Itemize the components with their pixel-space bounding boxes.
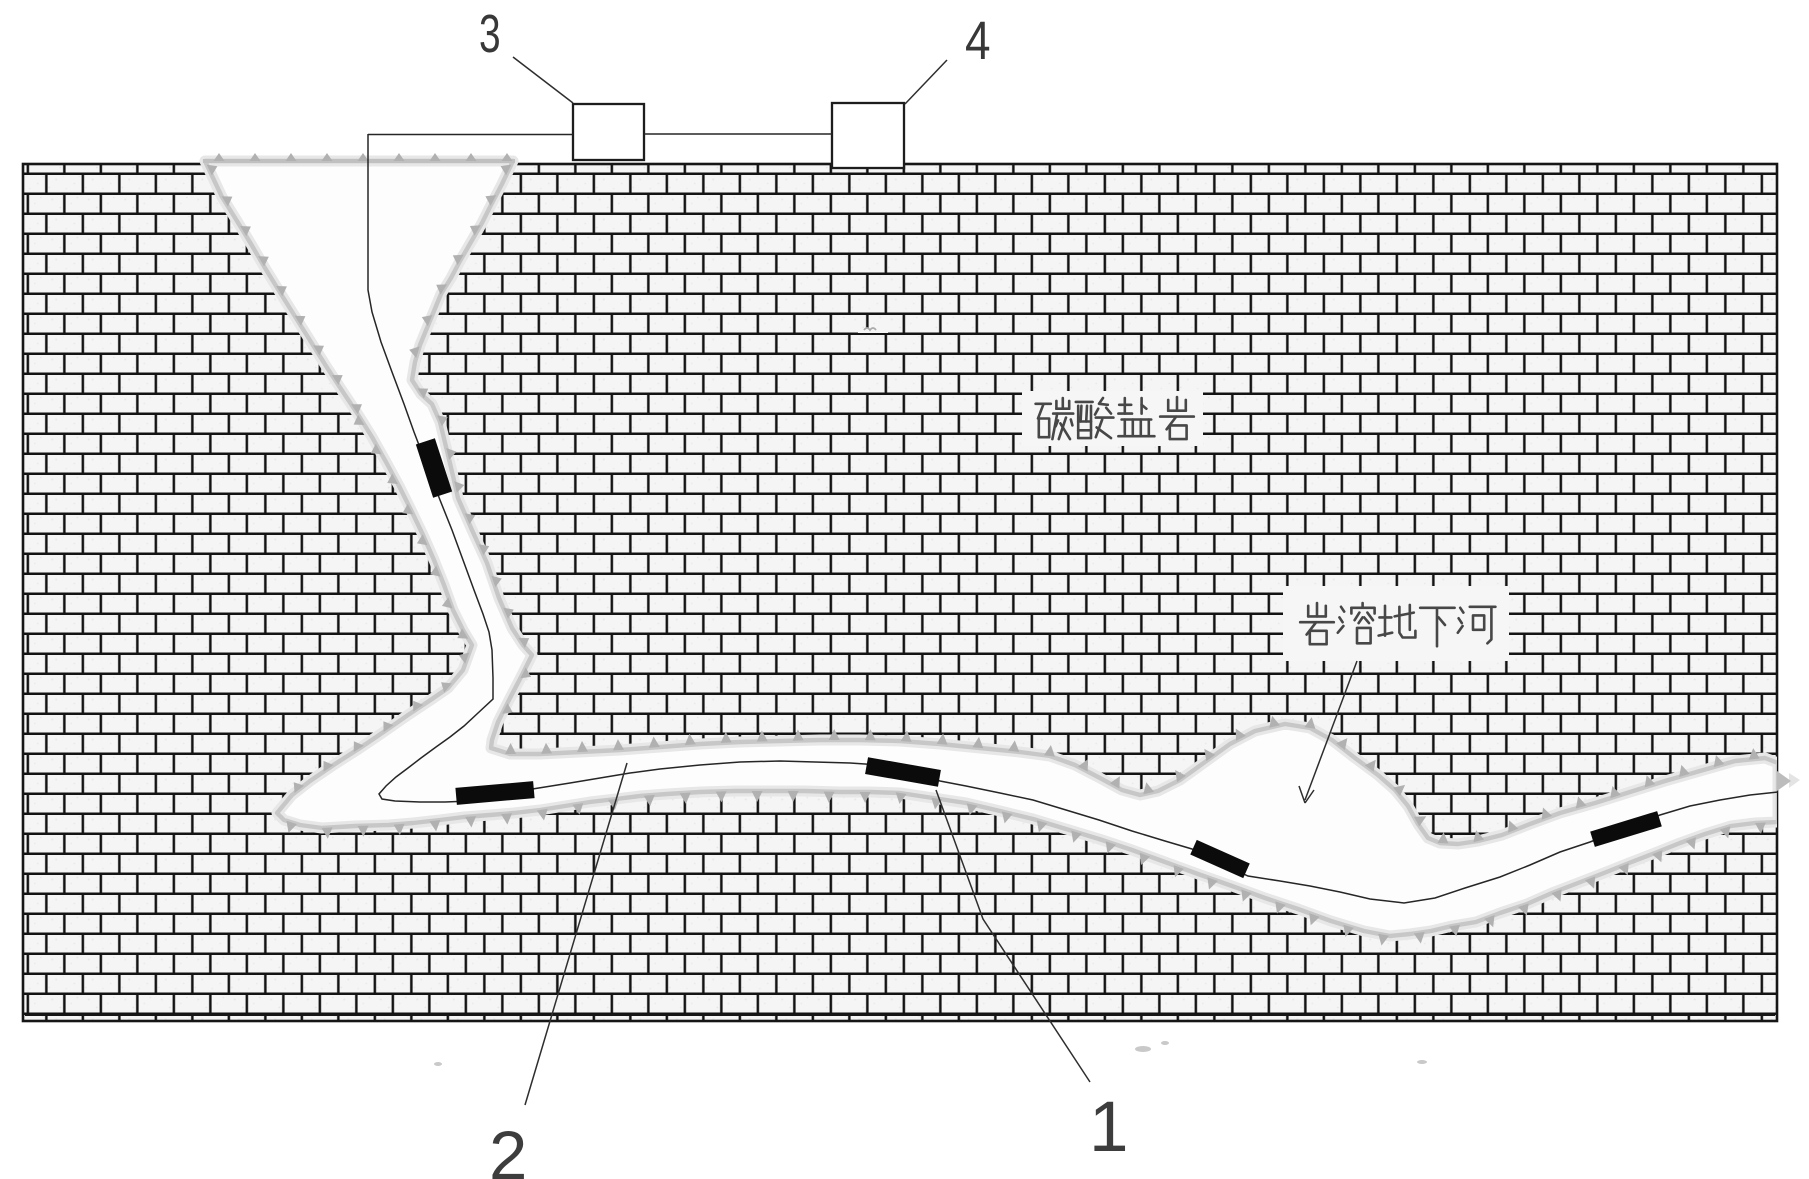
svg-text:2: 2 [489,1117,527,1179]
svg-text:4: 4 [965,11,991,71]
svg-text:1: 1 [1089,1088,1129,1167]
svg-text:3: 3 [479,3,501,64]
